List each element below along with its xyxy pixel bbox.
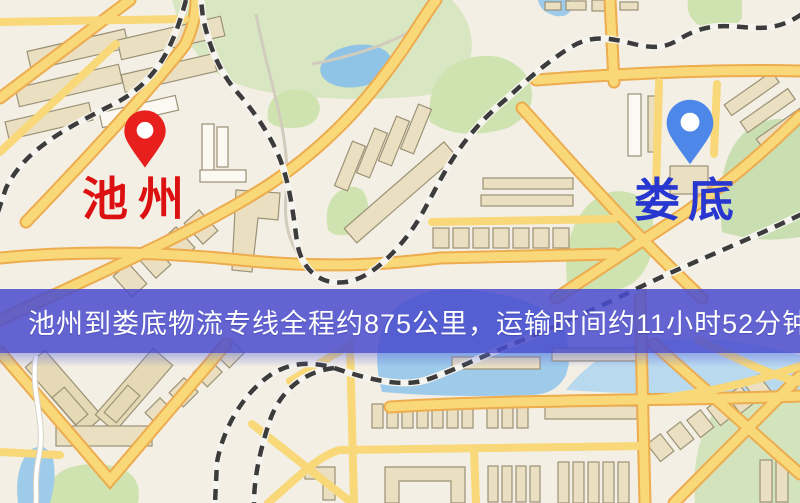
destination-city-label: 娄底 <box>634 177 742 223</box>
origin-pin-shape <box>124 110 165 167</box>
route-info-banner: 池州到娄底物流专线全程约875公里，运输时间约11小时52分钟. <box>0 289 800 353</box>
map-graphic <box>0 0 800 503</box>
destination-pin-shape <box>667 100 714 165</box>
logistics-route-map: 池州到娄底物流专线全程约875公里，运输时间约11小时52分钟. 池州 娄底 <box>0 0 800 503</box>
route-info-text: 池州到娄底物流专线全程约875公里，运输时间约11小时52分钟. <box>0 302 800 341</box>
origin-city-label: 池州 <box>82 176 194 222</box>
origin-pin-icon[interactable] <box>121 108 169 170</box>
destination-pin-icon[interactable] <box>663 97 717 167</box>
